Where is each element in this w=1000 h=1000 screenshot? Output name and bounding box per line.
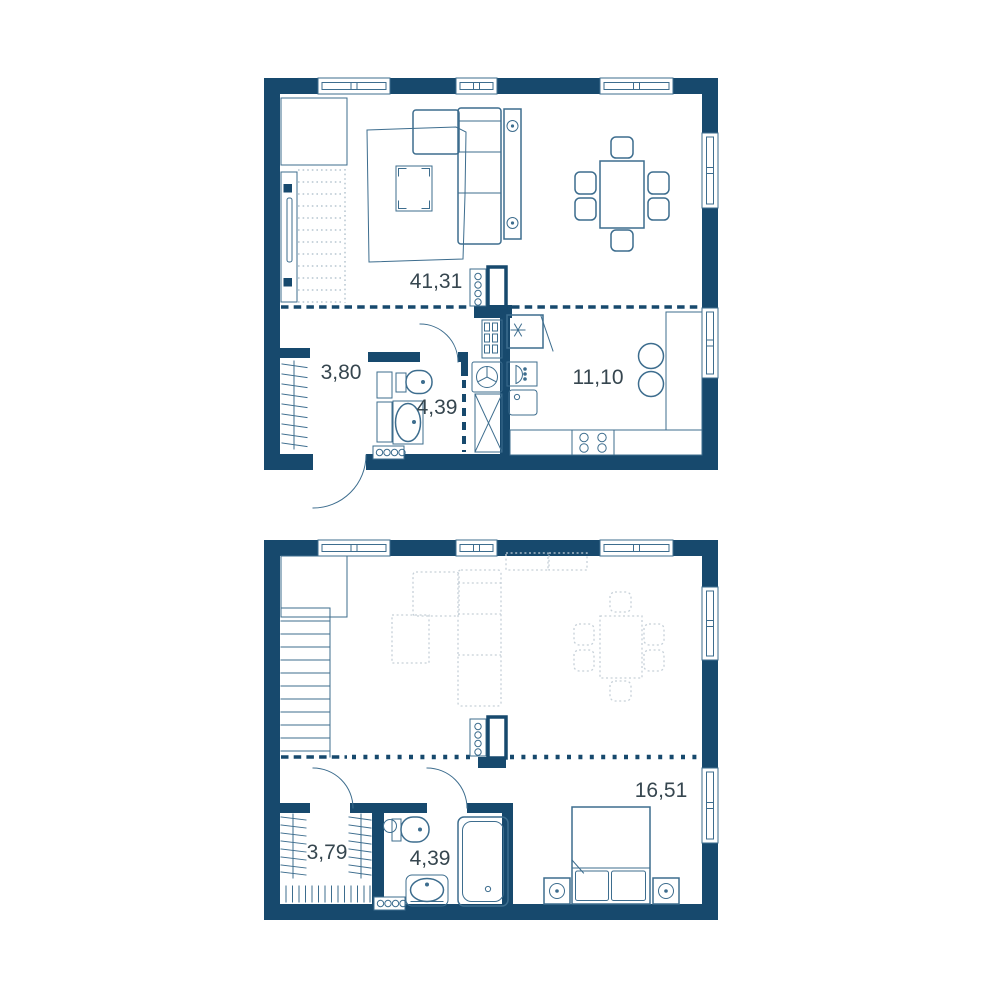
floor1-walls [264,78,718,470]
rug [367,127,466,262]
kitchen-counter [666,312,702,432]
floor2-bedroom [544,807,679,904]
room-area-label: 4,39 [417,396,458,419]
ghost-chair [574,624,594,645]
stair-landing [281,98,347,165]
floor1-plan: 41,31 3,80 4,39 11,10 [264,78,718,508]
ghost-furniture-below [392,553,664,706]
ghost-chair [644,624,664,645]
window-icon [456,78,497,94]
ghost-dining-table [600,616,642,678]
window-icon [318,78,390,94]
room-area-label: 4,39 [410,847,451,870]
bathtub-icon [458,817,508,906]
room-area-label: 3,80 [321,361,362,384]
stair-railing [281,172,297,302]
window-icon [318,540,390,556]
ghost-chair [610,592,631,612]
ghost-chair [610,681,631,701]
bath-cabinet [377,402,392,442]
ghost-sofa [413,572,459,616]
cooktop-icon [572,430,614,455]
laundry-niche [472,320,502,452]
chair [611,230,633,251]
floor2-riser-shaft [470,717,506,758]
double-bed-icon [572,807,650,904]
floor1-windows [318,78,718,378]
window-icon [456,540,497,556]
floor2-wardrobe [281,768,371,902]
shower-shaft-icon [475,394,502,452]
dining-table [600,161,644,228]
dining-set [575,137,669,251]
floor2-staircase [281,556,347,757]
floor1-staircase [281,98,347,303]
entrance-door-swing [313,455,366,508]
ghost-chair [574,650,594,671]
shoe-shelf-hatch [286,886,370,902]
floor-plan-canvas: 41,31 3,80 4,39 11,10 [0,0,1000,1000]
wall-drain-icon [384,820,397,833]
fridge-icon [507,315,553,351]
chair [648,172,669,194]
chair [575,198,596,220]
ghost-coffee-table [392,615,429,663]
bar-stool [639,372,664,397]
room-area-label: 11,10 [573,366,624,389]
floor1-riser-shaft [470,267,506,308]
towel-radiator-icon [374,897,406,910]
ghost-sofa [458,570,501,706]
floor2-bathroom [374,768,508,910]
floor-plan-drawing: 41,31 3,80 4,39 11,10 [0,0,1000,1000]
room-area-label: 3,79 [307,841,348,864]
nightstand-icon [544,878,570,904]
bath-cabinet [377,372,392,398]
wardrobe-door-swing [313,768,353,808]
window-icon [702,768,718,843]
chair [611,137,633,158]
nightstand-icon [653,878,679,904]
bathroom-door-swing [420,324,458,362]
ghost-chair [644,650,664,671]
floor1-bathroom [373,324,458,459]
coffee-table [396,166,432,211]
towel-radiator-icon [373,446,405,459]
pantry-shelf [482,320,502,358]
bar-stool [639,344,664,369]
window-icon [702,308,718,378]
toilet-icon [392,817,429,842]
window-icon [702,133,718,208]
sink-icon [406,875,448,906]
room-area-label: 16,51 [635,779,688,802]
room-area-label: 41,31 [410,270,463,293]
window-icon [600,78,673,94]
kitchen-sink-icon [507,362,537,386]
hallway-wardrobe-rail [282,361,307,449]
chair [575,172,596,194]
floor2-plan: 16,51 3,79 4,39 [264,540,718,920]
washing-machine-icon [472,362,502,392]
bathroom-door-swing [427,768,467,808]
dishwasher-icon [509,390,537,415]
window-icon [702,587,718,660]
chair [648,198,669,220]
tv-console [504,109,521,239]
window-icon [600,540,673,556]
toilet-icon [396,371,432,394]
